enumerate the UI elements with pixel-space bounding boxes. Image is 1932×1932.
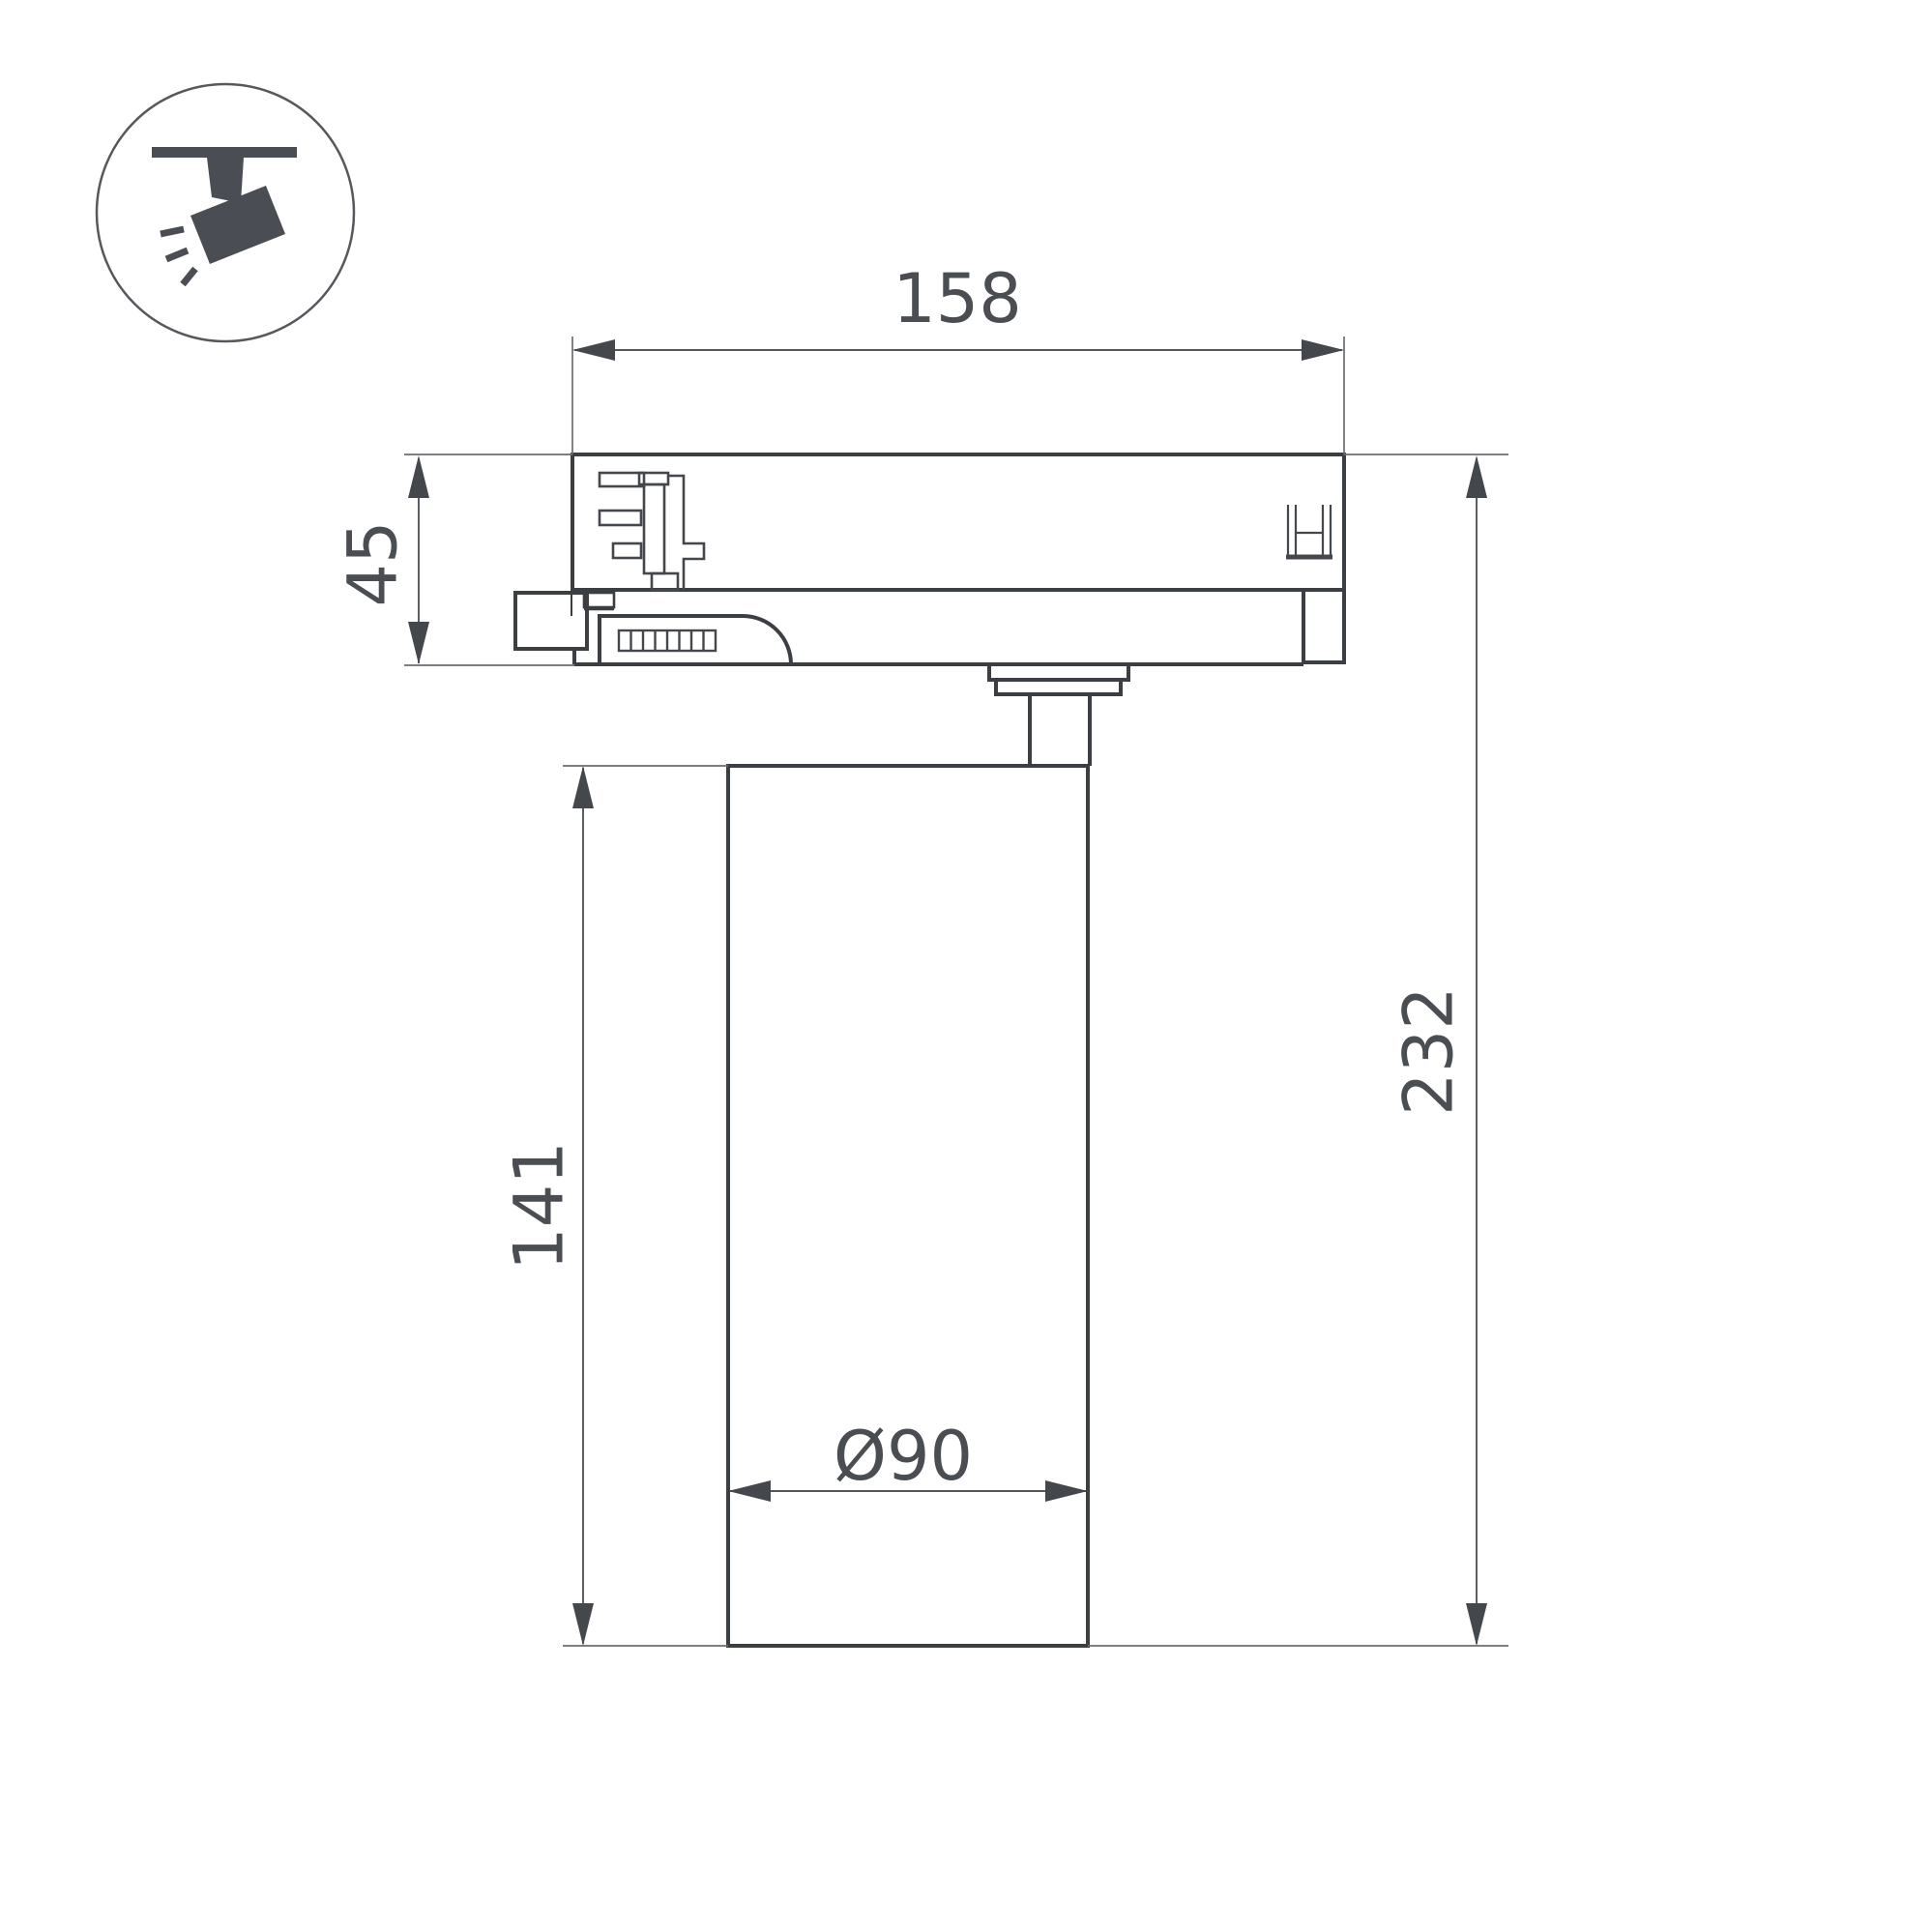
adapter-upper-box bbox=[572, 454, 1344, 590]
contact-block bbox=[600, 473, 704, 590]
lamp-cylinder bbox=[728, 766, 1088, 1646]
adapter-right-endcap bbox=[1303, 590, 1344, 662]
dim-label-body-height: 141 bbox=[500, 1141, 579, 1271]
swivel-mount bbox=[989, 664, 1128, 766]
dim-label-body-diameter: Ø90 bbox=[834, 1417, 973, 1496]
track-spotlight-icon bbox=[97, 84, 354, 341]
mount-step-2 bbox=[996, 680, 1121, 694]
drawing-canvas: 158 45 141 Ø90 232 bbox=[0, 0, 1932, 1932]
dim-label-adapter-height: 45 bbox=[334, 520, 413, 606]
contact-prong-3 bbox=[613, 543, 641, 558]
latch-block bbox=[515, 593, 587, 649]
dim-label-total-height: 232 bbox=[1390, 986, 1469, 1116]
contact-stem bbox=[644, 484, 664, 573]
contact-prong-2 bbox=[600, 511, 641, 525]
right-clip bbox=[1286, 505, 1332, 557]
technical-drawing: 158 45 141 Ø90 232 bbox=[0, 0, 1932, 1932]
dim-label-adapter-width: 158 bbox=[893, 259, 1022, 338]
icon-track-stem bbox=[207, 158, 244, 203]
icon-track-bar bbox=[152, 147, 297, 158]
contact-foot bbox=[652, 573, 678, 590]
lever-outline bbox=[600, 616, 791, 664]
mount-step-1 bbox=[989, 664, 1128, 680]
lever-grip bbox=[619, 630, 716, 651]
contact-prong-1 bbox=[600, 473, 644, 486]
locking-latch bbox=[515, 593, 791, 664]
